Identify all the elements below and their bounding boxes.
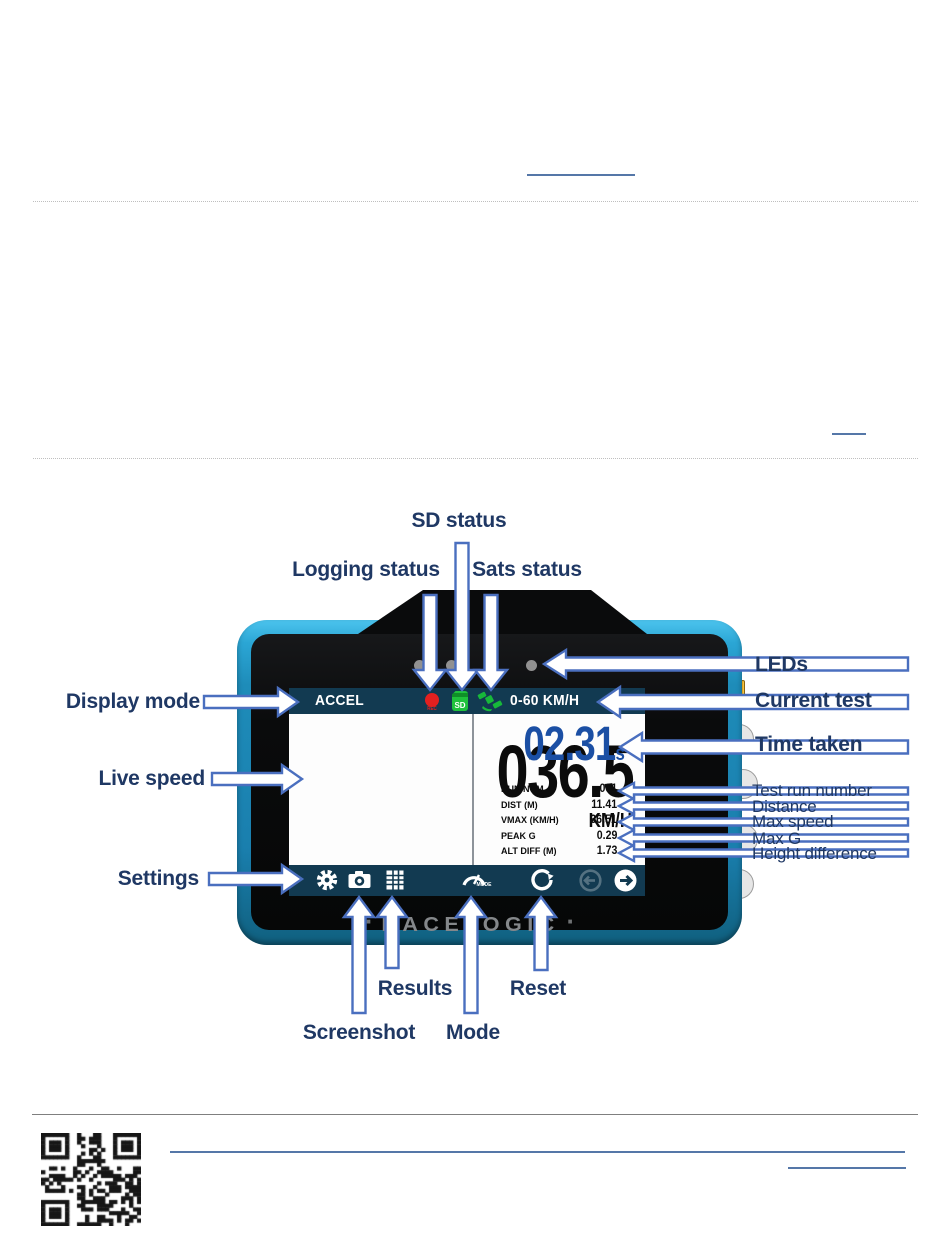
mode-icon-label: MODE: [464, 882, 504, 888]
link-underline-footer-1[interactable]: [170, 1151, 905, 1153]
sd-status-icon: SD: [452, 691, 468, 711]
label-mode: Mode: [446, 1021, 500, 1045]
screen-bottom-bar: MODE: [289, 865, 645, 896]
label-logging-status: Logging status: [292, 558, 440, 582]
label-results: Results: [378, 977, 452, 1001]
label-live-speed: Live speed: [98, 767, 205, 791]
status-led-2: [446, 660, 457, 671]
link-underline-mid[interactable]: [832, 433, 866, 435]
label-settings: Settings: [118, 867, 199, 891]
display-mode-value: ACCEL: [315, 692, 364, 709]
label-leds: LEDs: [755, 653, 808, 677]
section-divider-1: [33, 201, 918, 202]
results-table-icon: [385, 869, 405, 891]
stat-row: RUN NUM001: [501, 783, 617, 799]
label-display-mode: Display mode: [66, 690, 200, 714]
time-taken-value: 02.31s: [524, 721, 625, 769]
label-current-test: Current test: [755, 689, 872, 713]
reset-icon: [530, 868, 554, 892]
section-divider-2: [33, 458, 918, 459]
label-screenshot: Screenshot: [303, 1021, 415, 1045]
stat-row: PEAK G0.29: [501, 830, 617, 846]
current-test-value: 0-60 KM/H: [510, 692, 579, 709]
status-led-1: [414, 660, 425, 671]
mount-hump: [237, 588, 742, 634]
brand-text: ·RACELOGIC·: [237, 906, 703, 937]
results-stats: RUN NUM001 DIST (M)11.41 VMAX (KM/H)36.5…: [501, 783, 617, 861]
device-screen: ACCEL REC SD 0-60 KM/H: [289, 688, 645, 896]
label-sd-status: SD status: [411, 509, 506, 533]
footer-rule: [32, 1114, 918, 1115]
label-height-difference: Height difference: [752, 844, 877, 864]
next-icon: [614, 869, 637, 892]
vbox-touch-device: ACCEL REC SD 0-60 KM/H: [237, 588, 742, 945]
stat-row: VMAX (KM/H)36.51: [501, 814, 617, 830]
qr-code: [41, 1133, 141, 1226]
document-page: SD status Logging status Sats status Dis…: [0, 0, 950, 1241]
previous-icon: [579, 869, 602, 892]
label-sats-status: Sats status: [472, 558, 582, 582]
label-time-taken: Time taken: [755, 733, 862, 757]
stat-row: ALT DIFF (M)1.73: [501, 845, 617, 861]
screenshot-camera-icon: [347, 869, 372, 891]
screen-top-bar: ACCEL REC SD 0-60 KM/H: [289, 688, 645, 714]
label-reset: Reset: [510, 977, 566, 1001]
settings-gear-icon: [316, 869, 338, 891]
link-underline-footer-2[interactable]: [788, 1167, 906, 1169]
status-led-3: [526, 660, 537, 671]
sats-status-icon: [477, 690, 503, 712]
panel-divider: [472, 714, 474, 865]
stat-row: DIST (M)11.41: [501, 799, 617, 815]
link-underline-top[interactable]: [527, 174, 635, 176]
logging-status-icon: REC: [425, 693, 439, 711]
